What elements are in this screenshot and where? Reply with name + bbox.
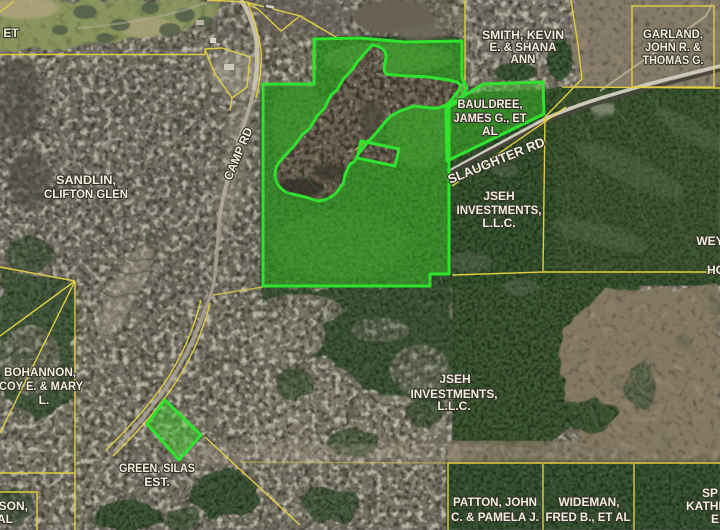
svg-text:HO: HO — [707, 263, 720, 277]
svg-text:ET: ET — [3, 26, 19, 40]
svg-text:GREEN, SILAS: GREEN, SILAS — [119, 461, 195, 475]
svg-text:SON,: SON, — [0, 499, 28, 513]
svg-text:L.: L. — [39, 393, 50, 407]
svg-text:EST.: EST. — [144, 475, 169, 489]
svg-text:COY E. & MARY: COY E. & MARY — [0, 379, 83, 393]
svg-text:AL: AL — [482, 124, 498, 138]
svg-text:BOHANNON,: BOHANNON, — [4, 365, 76, 379]
svg-text:CLIFTON GLEN: CLIFTON GLEN — [44, 187, 128, 201]
svg-text:JSEH: JSEH — [439, 372, 470, 386]
svg-text:C. & PAMELA J.: C. & PAMELA J. — [451, 510, 539, 524]
svg-text:FRED B., ET AL: FRED B., ET AL — [546, 510, 631, 524]
svg-text:KATHE: KATHE — [686, 499, 720, 513]
svg-text:JOHN R. &: JOHN R. & — [645, 40, 701, 54]
svg-text:GARLAND,: GARLAND, — [643, 27, 703, 41]
svg-text:WIDEMAN,: WIDEMAN, — [559, 495, 620, 509]
svg-text:JAMES G., ET: JAMES G., ET — [454, 111, 528, 125]
svg-text:ANN: ANN — [511, 52, 536, 66]
svg-text:SANDLIN,: SANDLIN, — [56, 173, 116, 187]
svg-text:PATTON, JOHN: PATTON, JOHN — [453, 495, 537, 509]
svg-text:WEY: WEY — [696, 234, 720, 248]
svg-text:SP: SP — [702, 486, 718, 500]
svg-text:JSEH: JSEH — [483, 189, 514, 203]
svg-text:AL: AL — [0, 512, 13, 526]
svg-text:INVESTMENTS,: INVESTMENTS, — [457, 203, 542, 217]
svg-text:BAULDREE,: BAULDREE, — [458, 97, 523, 111]
svg-text:THOMAS G.: THOMAS G. — [643, 53, 704, 67]
svg-text:E: E — [711, 512, 719, 526]
svg-text:L.L.C.: L.L.C. — [437, 399, 470, 413]
svg-text:L.L.C.: L.L.C. — [482, 216, 515, 230]
